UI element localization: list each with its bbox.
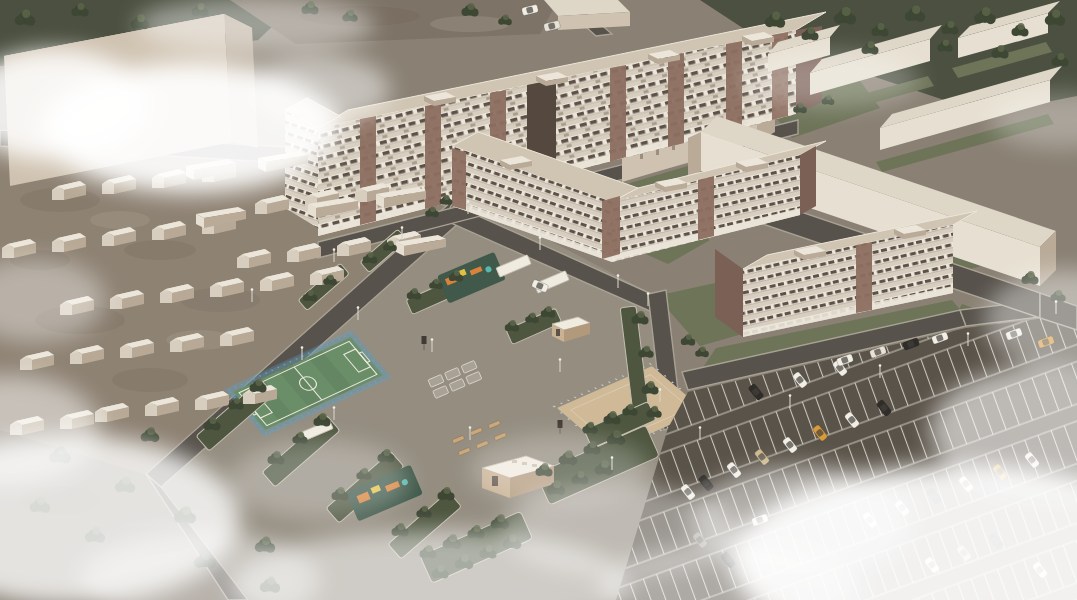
cloud [740, 52, 920, 108]
aerial-render [0, 0, 1077, 600]
pavilion-door [556, 329, 560, 336]
aerial-render-stage [0, 0, 1077, 600]
midrise-end-wall [800, 146, 816, 215]
info-board [422, 336, 427, 344]
fog [230, 440, 410, 520]
midrise-accent-bay [856, 242, 872, 313]
info-board [558, 420, 563, 428]
cloud [250, 55, 390, 125]
